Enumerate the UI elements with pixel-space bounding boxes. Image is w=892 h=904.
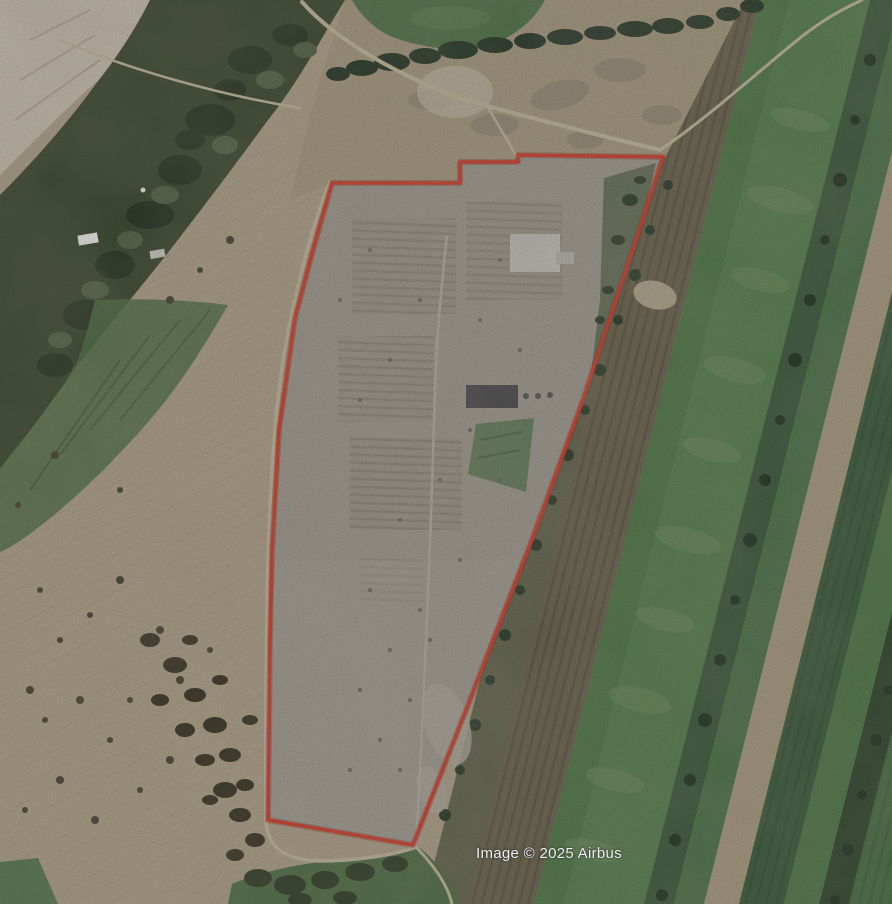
satellite-map-view[interactable]: Image © 2025 Airbus [0, 0, 892, 904]
imagery-attribution: Image © 2025 Airbus [476, 845, 622, 862]
satellite-canvas[interactable] [0, 0, 892, 904]
grain-overlay [0, 0, 892, 904]
